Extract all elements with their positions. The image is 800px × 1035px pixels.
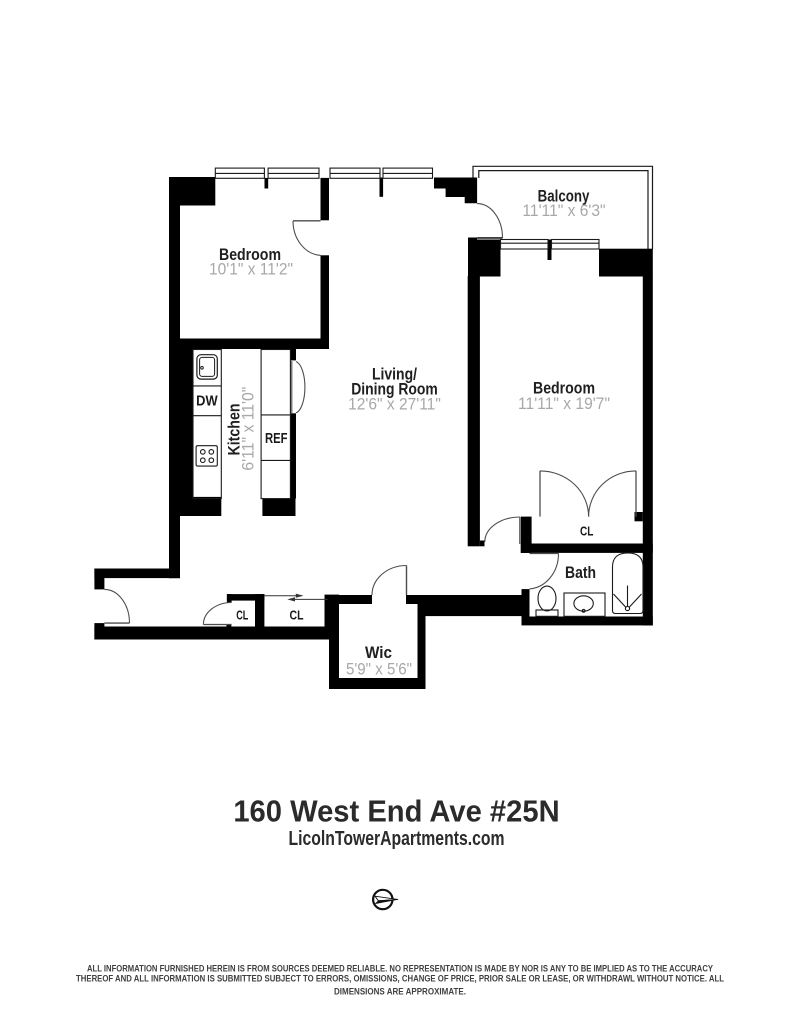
svg-text:ALL INFORMATION FURNISHED HERE: ALL INFORMATION FURNISHED HEREIN IS FROM… (87, 963, 714, 973)
svg-text:11'11" x 19'7": 11'11" x 19'7" (518, 395, 610, 413)
svg-text:REF: REF (265, 431, 288, 447)
svg-text:Wic: Wic (365, 644, 392, 662)
svg-text:CL: CL (236, 607, 248, 622)
svg-text:10'1" x 11'2": 10'1" x 11'2" (209, 261, 293, 279)
svg-text:DW: DW (196, 393, 218, 409)
svg-text:CL: CL (580, 523, 593, 538)
svg-text:11'11" x 6'3": 11'11" x 6'3" (522, 202, 605, 220)
svg-text:5'9" x 5'6": 5'9" x 5'6" (346, 661, 412, 679)
svg-text:THEREOF AND ALL INFORMATION IS: THEREOF AND ALL INFORMATION IS SUBMITTED… (76, 974, 724, 984)
svg-text:6'11" x 11'0": 6'11" x 11'0" (240, 386, 258, 470)
svg-text:12'6" x 27'11": 12'6" x 27'11" (348, 396, 441, 414)
svg-text:Bath: Bath (565, 564, 596, 582)
svg-text:DIMENSIONS ARE APPROXIMATE.: DIMENSIONS ARE APPROXIMATE. (334, 987, 466, 997)
svg-text:CL: CL (290, 607, 304, 622)
svg-text:160 West End Ave #25N: 160 West End Ave #25N (233, 794, 559, 829)
svg-text:LicolnTowerApartments.com: LicolnTowerApartments.com (289, 828, 505, 850)
